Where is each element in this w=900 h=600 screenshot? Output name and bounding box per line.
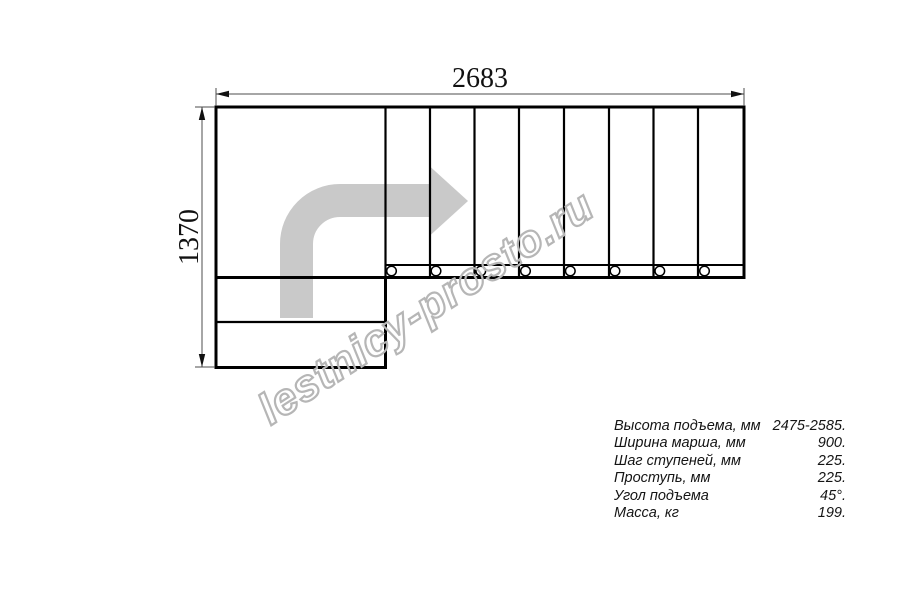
spec-row: Проступь, мм 225. — [614, 470, 846, 487]
dimension-width: 2683 — [216, 63, 744, 106]
fastener-circle — [521, 266, 531, 276]
spec-value: 45°. — [820, 488, 846, 505]
spec-value: 900. — [818, 435, 846, 452]
upper-flight-step-lines — [430, 107, 698, 278]
spec-label: Угол подъема — [614, 488, 709, 505]
stair-drawing-canvas: 2683 1370 lestnicy-prosto.ru Высота подъ… — [0, 0, 900, 600]
fastener-circles — [387, 266, 710, 276]
fastener-circle — [431, 266, 441, 276]
specs-table: Высота подъема, мм 2475-2585. Ширина мар… — [614, 418, 846, 522]
walk-arrow-shaft — [297, 201, 431, 319]
spec-value: 225. — [818, 453, 846, 470]
spec-label: Ширина марша, мм — [614, 435, 746, 452]
dim-arrow-left-icon — [216, 91, 229, 97]
dimension-height: 1370 — [174, 107, 215, 367]
fastener-circle — [700, 266, 710, 276]
spec-value: 199. — [818, 505, 846, 522]
fastener-circle — [655, 266, 665, 276]
spec-label: Масса, кг — [614, 505, 679, 522]
spec-label: Проступь, мм — [614, 470, 710, 487]
fastener-circle — [387, 266, 397, 276]
dimension-width-value: 2683 — [452, 63, 508, 94]
dimension-height-value: 1370 — [174, 209, 205, 265]
spec-value: 225. — [818, 470, 846, 487]
fastener-circle — [566, 266, 576, 276]
fastener-circle — [476, 266, 486, 276]
walk-direction-arrow — [297, 167, 469, 319]
walk-arrow-head-icon — [430, 167, 468, 236]
spec-value: 2475-2585. — [773, 418, 846, 435]
spec-label: Шаг ступеней, мм — [614, 453, 741, 470]
dim-arrow-down-icon — [199, 354, 205, 367]
spec-row: Масса, кг 199. — [614, 505, 846, 522]
fastener-circle — [610, 266, 620, 276]
spec-row: Угол подъема 45°. — [614, 488, 846, 505]
spec-row: Высота подъема, мм 2475-2585. — [614, 418, 846, 435]
spec-row: Ширина марша, мм 900. — [614, 435, 846, 452]
spec-row: Шаг ступеней, мм 225. — [614, 453, 846, 470]
spec-label: Высота подъема, мм — [614, 418, 761, 435]
dim-arrow-right-icon — [731, 91, 744, 97]
dim-arrow-up-icon — [199, 107, 205, 120]
